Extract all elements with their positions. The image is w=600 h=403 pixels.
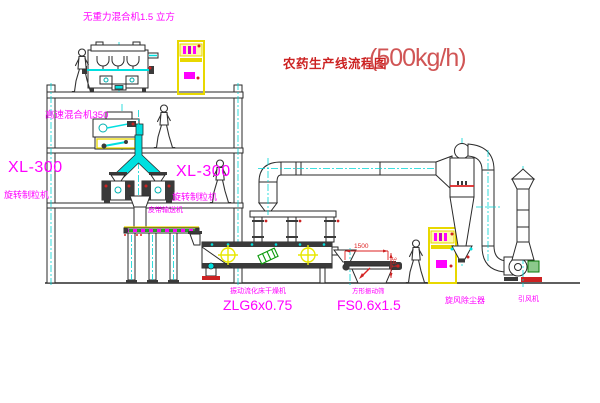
belt-conveyor xyxy=(124,227,202,283)
control-cabinet-lower xyxy=(429,228,456,283)
diagram-title-capacity: (500kg/h) xyxy=(369,44,466,73)
label-gravity-free-mixer: 无重力混合机1.5 立方 xyxy=(83,13,175,23)
label-belt-conveyor: 皮带输送机 xyxy=(148,207,183,214)
rotary-granulator-left xyxy=(102,172,134,203)
label-granulator-left: 旋转制粒机 xyxy=(4,191,49,200)
person-icon xyxy=(406,240,427,283)
label-sieve-name: 方形振动筛 xyxy=(352,289,385,296)
label-xl300-left: XL-300 xyxy=(8,160,63,176)
label-sieve-model: FS0.6x1.5 xyxy=(337,298,401,312)
exhaust-duct xyxy=(258,158,458,215)
cad-flow-diagram: 无重力混合机1.5 立方 农药生产线流程图 (500kg/h) 高速混合机350… xyxy=(0,0,600,403)
label-granulator-right: 旋转制粒机 xyxy=(172,193,217,202)
label-high-speed-mixer: 高速混合机350 xyxy=(45,111,108,121)
label-xl300-right: XL-300 xyxy=(176,164,231,180)
dimension-sieve-height: 341 xyxy=(390,257,397,268)
person-icon xyxy=(154,105,175,148)
label-dryer-name: 振动流化床干燥机 xyxy=(230,288,286,295)
gravity-free-mixer xyxy=(82,42,158,92)
label-cyclone: 旋风除尘器 xyxy=(445,297,485,305)
label-fan: 引风机 xyxy=(518,296,539,303)
fluid-bed-dryer xyxy=(202,211,356,283)
control-cabinet-upper xyxy=(178,41,204,94)
discharge-duct xyxy=(130,196,150,227)
dimension-sieve-length: 1500 xyxy=(354,244,368,251)
label-dryer-model: ZLG6x0.75 xyxy=(223,298,292,312)
